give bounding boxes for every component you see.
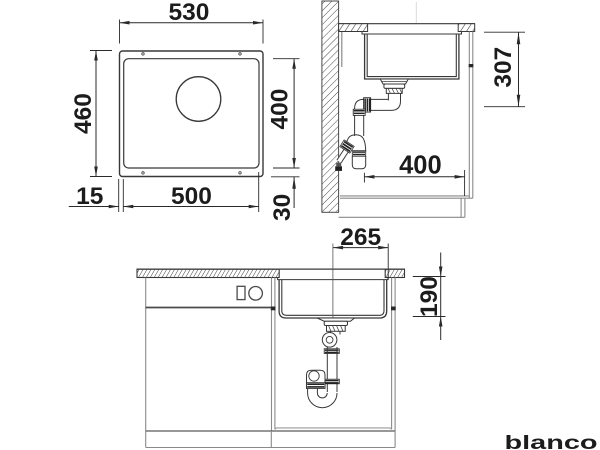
svg-text:400: 400 (266, 89, 293, 130)
svg-text:30: 30 (269, 194, 296, 221)
svg-text:15: 15 (76, 183, 103, 210)
svg-text:190: 190 (416, 276, 443, 317)
svg-text:530: 530 (169, 0, 210, 26)
svg-text:460: 460 (70, 93, 97, 134)
svg-text:307: 307 (490, 47, 517, 88)
svg-text:blanco: blanco (505, 433, 598, 450)
svg-text:265: 265 (340, 224, 381, 251)
svg-text:400: 400 (399, 152, 442, 180)
svg-text:500: 500 (171, 183, 212, 210)
